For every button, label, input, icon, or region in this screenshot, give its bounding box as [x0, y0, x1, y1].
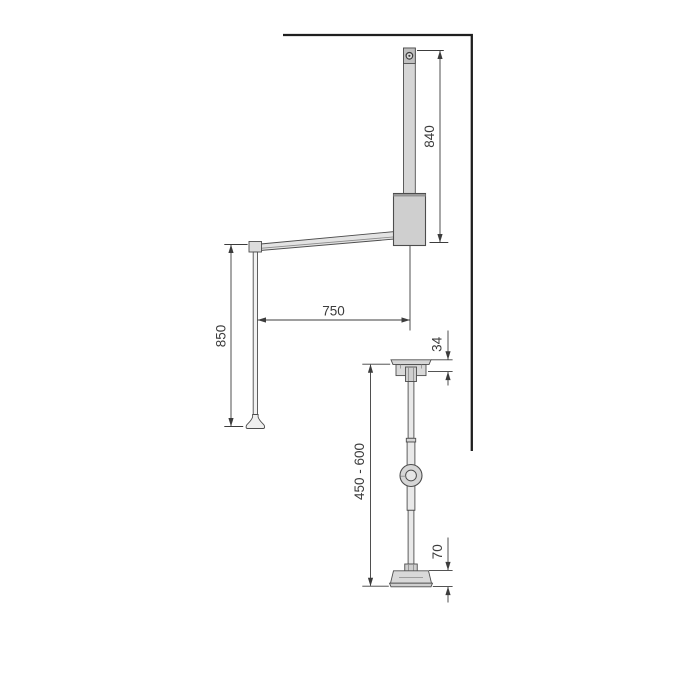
- support-column-collar: [406, 438, 415, 442]
- dim-70: 70: [429, 538, 453, 603]
- dim-750-arrow-left-icon: [258, 317, 267, 322]
- support-top-plate: [391, 360, 431, 365]
- dim-750-arrow-right-icon: [402, 317, 411, 322]
- wardrobe-lift-drawing: 840 750 850: [0, 0, 700, 700]
- lift-mechanism-body: [394, 194, 426, 246]
- support-base-plate: [391, 571, 432, 583]
- dim-70-arrow-up-icon: [445, 587, 450, 596]
- dim-840-arrow-up-icon: [437, 51, 442, 60]
- support-base-rim: [390, 583, 433, 587]
- side-view: [390, 360, 433, 587]
- swing-arm: [261, 232, 396, 251]
- dim-750: 750: [258, 304, 411, 323]
- dim-750-label: 750: [322, 304, 345, 319]
- dim-450-600-arrow-down-icon: [368, 578, 373, 587]
- dim-850-arrow-down-icon: [228, 418, 233, 427]
- technical-drawing-page: 840 750 850: [0, 0, 700, 700]
- dim-34-label: 34: [430, 336, 445, 352]
- rod-cone-tip: [246, 415, 264, 429]
- dim-450-600: 450 - 600: [352, 364, 390, 586]
- dim-34: 34: [428, 331, 453, 386]
- dim-850-label: 850: [213, 325, 228, 348]
- adjustment-knob-hub: [406, 470, 417, 481]
- dim-840-label: 840: [422, 125, 437, 148]
- arm-end-cap: [249, 242, 262, 253]
- dim-850: 850: [213, 245, 247, 427]
- dim-34-arrow-down-icon: [445, 351, 450, 360]
- dim-70-label: 70: [430, 544, 445, 559]
- dim-34-arrow-up-icon: [445, 372, 450, 381]
- support-column-lower: [408, 510, 414, 564]
- support-top-nut: [406, 367, 417, 382]
- hanging-rod: [253, 252, 257, 415]
- dim-450-600-arrow-up-icon: [368, 364, 373, 373]
- mounting-bar: [404, 48, 416, 194]
- dim-850-arrow-up-icon: [228, 245, 233, 254]
- dim-840-arrow-down-icon: [437, 234, 442, 243]
- screw-hole-center-icon: [408, 55, 410, 57]
- support-column-upper: [408, 382, 414, 439]
- dim-450-600-label: 450 - 600: [352, 443, 367, 500]
- dim-70-arrow-down-icon: [445, 562, 450, 571]
